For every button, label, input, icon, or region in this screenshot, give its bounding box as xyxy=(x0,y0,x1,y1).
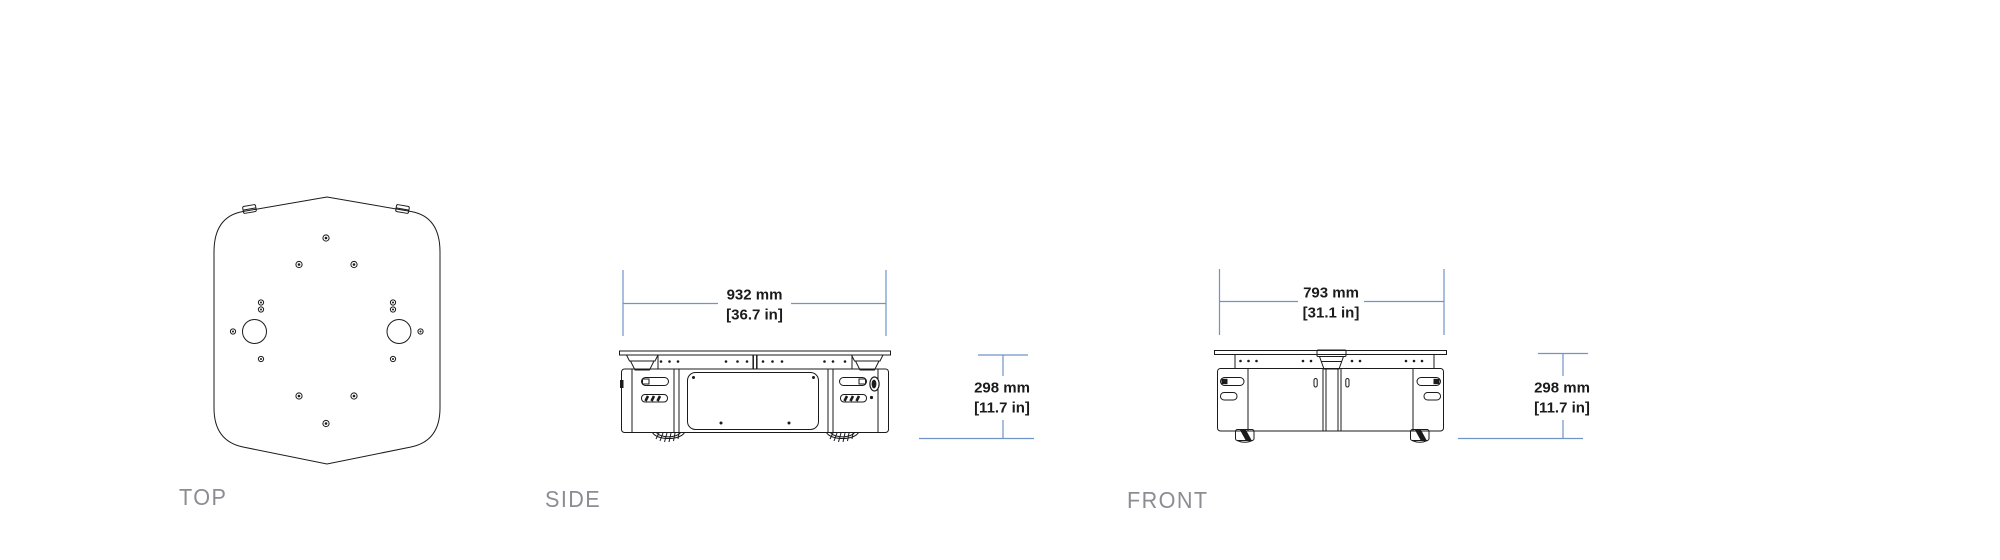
side-view xyxy=(620,351,891,442)
front-hinge-slots xyxy=(1314,379,1349,388)
side-height-mm: 298 mm xyxy=(974,380,1030,397)
front-body-outline xyxy=(1218,369,1444,432)
side-handle-slot-left xyxy=(642,378,669,386)
side-width-mm: 932 mm xyxy=(727,287,783,304)
wheel-bolt-holes-right xyxy=(390,300,423,362)
front-handle-slots-left xyxy=(1221,378,1245,401)
top-plate-screw-left xyxy=(242,204,256,213)
front-view xyxy=(1215,350,1447,442)
front-width-mm: 793 mm xyxy=(1303,285,1359,302)
side-upper-band xyxy=(658,355,852,369)
side-height-dimension: 298 mm [11.7 in] xyxy=(919,355,1034,439)
side-cover-screws xyxy=(692,376,815,425)
side-height-inches: [11.7 in] xyxy=(974,400,1030,417)
top-view xyxy=(214,197,440,464)
drawing-canvas: 932 mm [36.7 in] 298 mm [11.7 in] 793 mm… xyxy=(0,0,2000,560)
side-wheel-left xyxy=(653,433,685,443)
dimension-lines xyxy=(1220,269,1445,335)
wheel-bolt-holes-left xyxy=(230,300,263,362)
side-handle-slot-right xyxy=(840,378,867,386)
drive-wheel-opening-left xyxy=(243,320,267,344)
laser-scanner-left xyxy=(627,355,659,370)
front-view-label: FRONT xyxy=(1127,487,1209,514)
front-height-dimension: 298 mm [11.7 in] xyxy=(1458,354,1590,439)
top-view-label: TOP xyxy=(179,484,227,511)
front-width-inches: [31.1 in] xyxy=(1303,305,1360,322)
side-width-dimension: 932 mm [36.7 in] xyxy=(623,270,886,336)
side-view-label: SIDE xyxy=(545,486,601,513)
front-handle-slots-right xyxy=(1417,378,1441,401)
front-panel-seams xyxy=(1248,369,1413,432)
robot-dimension-drawing: 932 mm [36.7 in] 298 mm [11.7 in] 793 mm… xyxy=(0,0,2000,560)
side-center-cover-panel xyxy=(688,373,819,430)
front-height-inches: [11.7 in] xyxy=(1534,400,1590,417)
side-wheel-right xyxy=(827,433,859,443)
front-height-mm: 298 mm xyxy=(1534,380,1590,397)
side-body-outline xyxy=(622,369,889,433)
laser-scanner-center xyxy=(1317,350,1346,369)
side-width-inches: [36.7 in] xyxy=(726,307,783,324)
payload-mounting-holes xyxy=(296,235,357,427)
laser-scanner-right xyxy=(852,355,884,370)
front-width-dimension: 793 mm [31.1 in] xyxy=(1220,269,1445,335)
front-top-plate xyxy=(1215,351,1447,355)
side-top-plate xyxy=(620,351,891,355)
dimension-lines xyxy=(919,355,1034,439)
side-connector-slot-right xyxy=(841,395,867,403)
side-edge-slot xyxy=(620,380,624,388)
drive-wheel-opening-right xyxy=(387,320,411,344)
side-connector-slot-left xyxy=(642,395,668,403)
